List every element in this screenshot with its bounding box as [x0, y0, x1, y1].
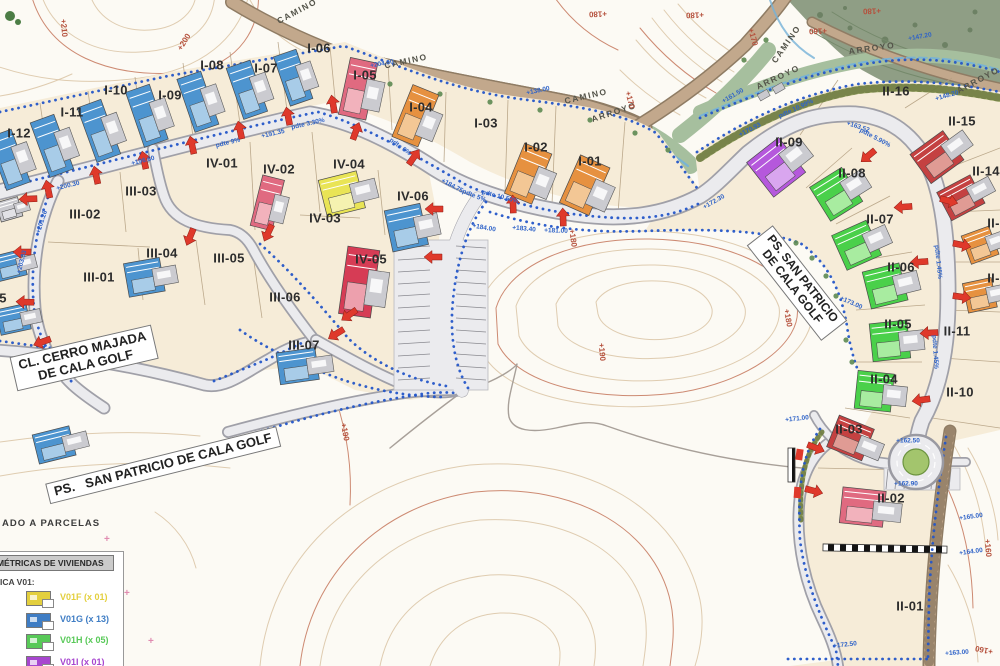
site-plan-map: I-12I-11I-10I-09I-08I-07I-06I-05I-04I-03… [0, 0, 1000, 666]
terrain-drawing [0, 0, 1000, 666]
